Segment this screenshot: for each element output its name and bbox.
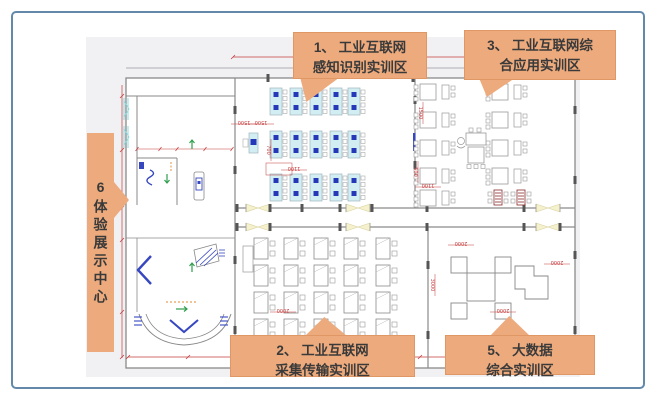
callout-zone3-line2: 合应用实训区 <box>465 56 615 76</box>
callout-zone6: 6体验展示中心 <box>87 133 114 352</box>
svg-text:700: 700 <box>265 145 271 155</box>
callout-zone2-line2: 采集传输实训区 <box>231 361 414 381</box>
callout-zone5-line1: 5、 大数据 <box>446 341 594 361</box>
svg-text:500: 500 <box>412 167 418 177</box>
callout-zone3: 3、 工业互联网综 合应用实训区 <box>464 30 616 80</box>
svg-text:2000: 2000 <box>551 259 564 265</box>
svg-text:2000: 2000 <box>455 240 468 246</box>
svg-text:2000: 2000 <box>277 307 290 313</box>
svg-text:1100: 1100 <box>422 182 435 188</box>
svg-text:1500: 1500 <box>417 107 423 120</box>
svg-text:1500: 1500 <box>255 119 268 125</box>
callout-zone2: 2、 工业互联网 采集传输实训区 <box>230 335 415 377</box>
callout-zone1-line2: 感知识别实训区 <box>294 58 426 78</box>
callout-zone1: 1、 工业互联网 感知识别实训区 <box>293 32 427 79</box>
svg-text:2000: 2000 <box>497 307 510 313</box>
callout-zone3-line1: 3、 工业互联网综 <box>465 36 615 56</box>
callout-zone1-line1: 1、 工业互联网 <box>294 38 426 58</box>
callout-zone2-line1: 2、 工业互联网 <box>231 341 414 361</box>
svg-text:3000: 3000 <box>429 279 435 292</box>
callout-zone6-label: 6体验展示中心 <box>91 179 111 307</box>
callout-zone5: 5、 大数据 综合实训区 <box>445 335 595 375</box>
callout-zone5-line2: 综合实训区 <box>446 361 594 381</box>
svg-text:1100: 1100 <box>288 165 301 171</box>
